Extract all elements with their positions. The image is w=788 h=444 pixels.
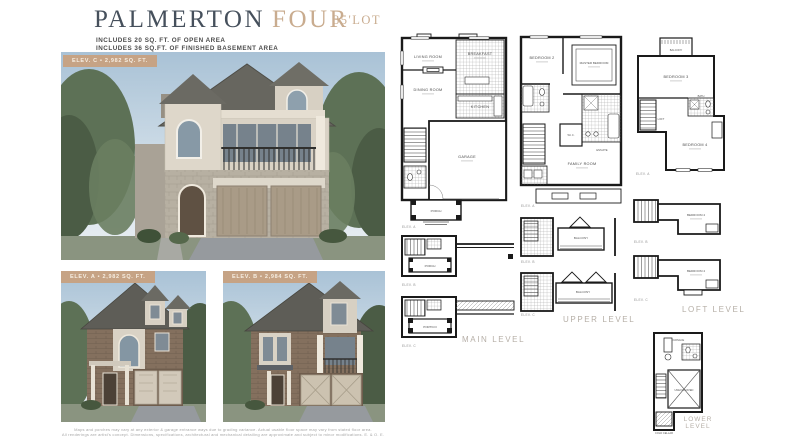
level-label-loft: LOFT LEVEL <box>682 305 745 314</box>
variant-caption-loft-c: ELEV. C <box>634 298 648 302</box>
room-label-bedroom4: BEDROOM 4 <box>682 143 707 147</box>
variant-caption-upper-b: ELEV. B <box>521 260 535 264</box>
room-label-balcony-b: BALCONY <box>574 236 588 240</box>
level-label-main: MAIN LEVEL <box>462 335 525 344</box>
room-label-ensuite: ENSUITE <box>596 148 608 152</box>
disclaimer: Maps and porches may vary at any exterio… <box>61 427 385 437</box>
floorplan-loft-level: BALCONY BEDROOM 3 BEDROOM 4 LOFT BATH EL… <box>630 36 728 176</box>
room-label-kitchen: KITCHEN <box>471 105 489 109</box>
variant-caption-loft-b: ELEV. B <box>634 240 648 244</box>
elevation-badge-b: ELEV. B • 2,984 SQ. FT. <box>223 271 317 283</box>
room-label-bedroom2: BEDROOM 2 <box>529 56 554 60</box>
variant-caption-loft-a: ELEV. A <box>636 172 650 176</box>
room-label-bedroom3: BEDROOM 3 <box>663 75 688 79</box>
room-label-loft-balcony: BALCONY <box>670 48 683 52</box>
lot-size-label: 35'LOT <box>333 13 381 28</box>
page-title-main: PALMERTON <box>94 6 265 33</box>
page-title: PALMERTONFOUR <box>94 6 349 34</box>
room-label-loft-bath: BATH <box>698 94 705 98</box>
house-illustration-elev-c <box>61 52 385 260</box>
room-label-furnace: FURNACE <box>672 338 685 342</box>
room-label-wic: W.I.C. <box>567 133 574 137</box>
floorplan-upper-level-elev-b: BALCONY ELEV. B <box>518 212 624 264</box>
variant-caption-main-a: ELEV. A <box>402 225 416 229</box>
room-label-breakfast: BREAKFAST <box>468 52 493 56</box>
room-label-dining: DINING ROOM <box>414 88 443 92</box>
level-label-lower-line1: LOWER <box>676 416 720 423</box>
entry-door <box>179 185 205 236</box>
room-label-master: MASTER BEDROOM <box>580 61 609 65</box>
variant-caption-main-b: ELEV. B <box>402 283 416 287</box>
room-label-balcony-c: BALCONY <box>576 290 590 294</box>
floorplan-loft-level-elev-c: BEDROOM 4 ELEV. C <box>630 250 728 302</box>
disclaimer-line-2: All renderings are artist's concept. Dim… <box>61 432 385 437</box>
garage-doors <box>299 373 363 406</box>
rendering-elev-c: ELEV. C • 2,982 SQ. FT. <box>61 52 385 260</box>
floorplan-main-level-elev-b: PORCH ELEV. B <box>399 232 517 289</box>
room-label-bedroom4-c: BEDROOM 4 <box>687 269 705 273</box>
room-label-porch: PORCH <box>431 209 442 213</box>
driveway <box>189 238 323 260</box>
room-label-cold-cellar: COLD CELLAR <box>655 431 673 435</box>
subtitle-line-2: INCLUDES 36 SQ.FT. OF FINISHED BASEMENT … <box>96 45 278 52</box>
room-label-loft: LOFT <box>658 117 665 121</box>
variant-caption-upper-a: ELEV. A <box>521 204 535 208</box>
elevation-badge-a: ELEV. A • 2,982 SQ. FT. <box>61 271 155 283</box>
house-illustration-elev-b <box>223 271 385 422</box>
room-label-garage: GARAGE <box>458 155 476 159</box>
rendering-elev-a: ELEV. A • 2,982 SQ. FT. <box>61 271 206 422</box>
room-label-unexcavated: UNEXCAVATED <box>675 388 694 392</box>
entry-door <box>103 373 117 405</box>
room-label-family: FAMILY ROOM <box>568 162 597 166</box>
floorplan-upper-level-elev-c: BALCONY ELEV. C <box>518 267 624 317</box>
rendering-elev-b: ELEV. B • 2,984 SQ. FT. <box>223 271 385 422</box>
entry-door <box>271 375 284 405</box>
level-label-lower-line2: LEVEL <box>676 423 720 430</box>
house-illustration-elev-a <box>61 271 206 422</box>
room-label-bedroom4-b: BEDROOM 4 <box>687 213 705 217</box>
level-label-upper: UPPER LEVEL <box>563 315 635 324</box>
subtitle-line-1: INCLUDES 20 SQ. FT. OF OPEN AREA <box>96 37 225 44</box>
balcony-doors <box>223 124 311 162</box>
variant-caption-upper-c: ELEV. C <box>521 313 535 317</box>
floorplan-loft-level-elev-b: BEDROOM 4 ELEV. B <box>630 194 728 244</box>
elevation-badge-c: ELEV. C • 2,982 SQ. FT. <box>63 55 157 67</box>
variant-caption-main-c: ELEV. C <box>402 344 416 348</box>
floorplan-main-level: LIVING ROOM BREAKFAST DINING ROOM KITCHE… <box>399 33 517 229</box>
room-label-living: LIVING ROOM <box>414 55 442 59</box>
garage-doors <box>133 369 183 406</box>
room-label-porch-b: PORCH <box>425 264 436 268</box>
bay-window <box>257 333 293 370</box>
brochure-page: PALMERTONFOUR 35'LOT INCLUDES 20 SQ. FT.… <box>0 0 788 444</box>
level-label-lower: LOWER LEVEL <box>676 416 720 430</box>
room-label-portico: PORTICO <box>423 325 437 329</box>
floorplan-upper-level: BEDROOM 2 MASTER BEDROOM W.I.C. ENSUITE … <box>518 32 624 208</box>
